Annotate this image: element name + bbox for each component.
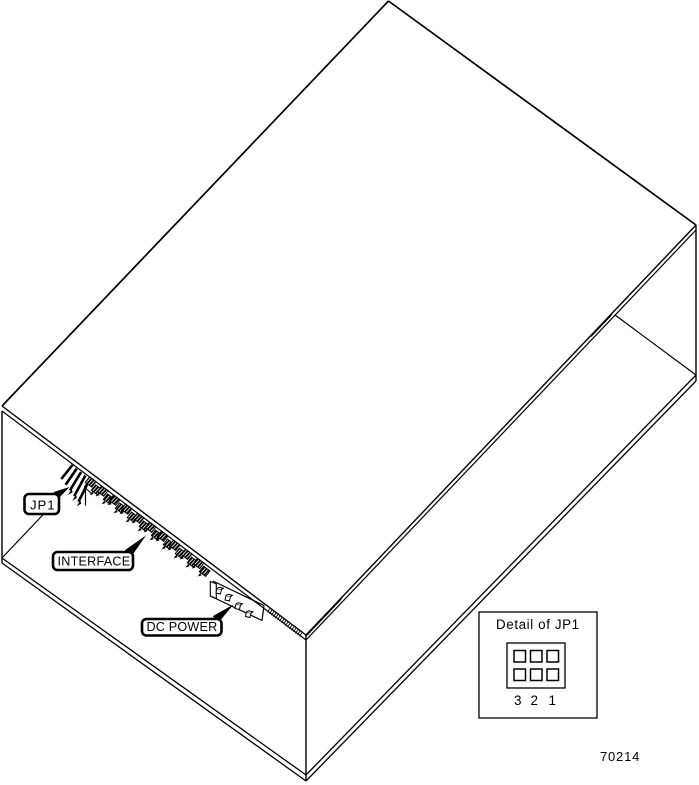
svg-text:JP1: JP1 <box>30 498 55 513</box>
svg-text:INTERFACE: INTERFACE <box>58 555 131 569</box>
svg-text:1: 1 <box>549 693 557 708</box>
svg-text:DC POWER: DC POWER <box>147 620 218 634</box>
svg-text:2: 2 <box>531 693 539 708</box>
svg-text:Detail of JP1: Detail of JP1 <box>496 617 580 632</box>
svg-text:70214: 70214 <box>600 749 640 764</box>
svg-text:3: 3 <box>514 693 522 708</box>
